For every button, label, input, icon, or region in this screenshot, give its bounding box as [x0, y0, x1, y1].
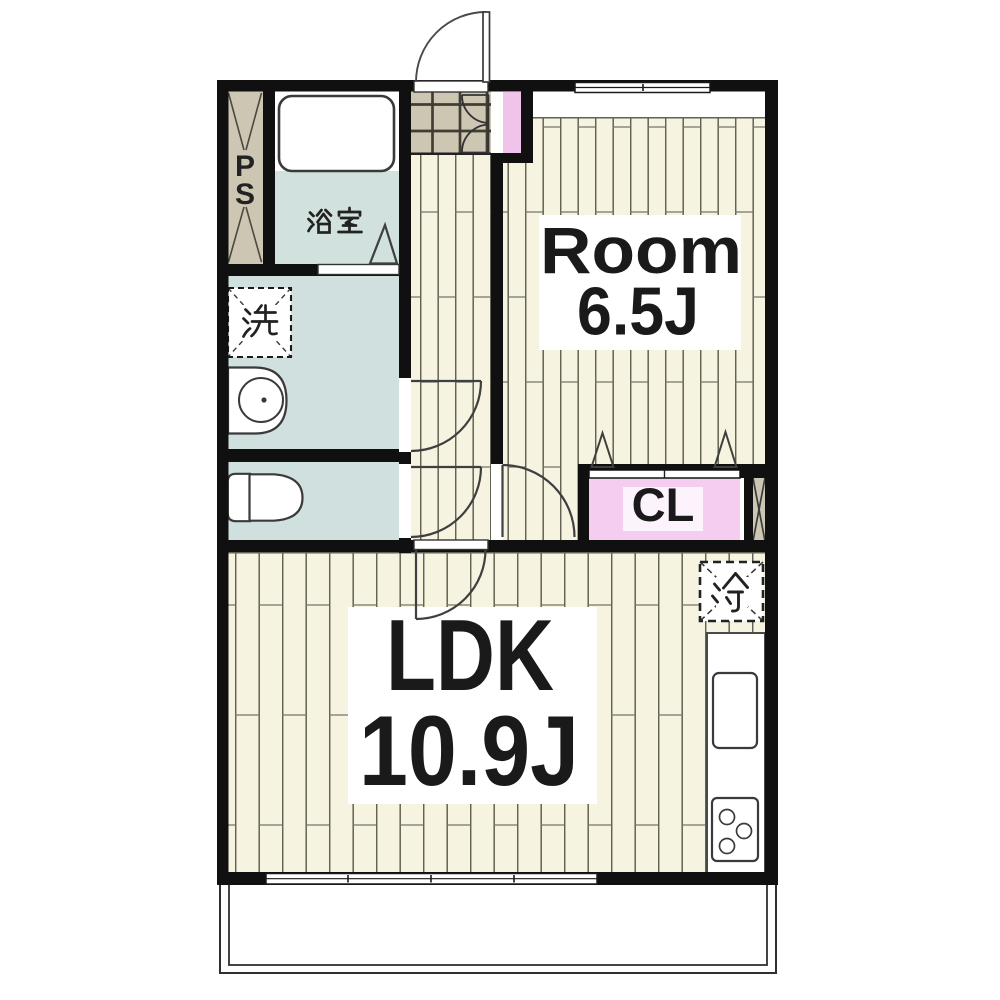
- svg-text:6.5J: 6.5J: [577, 274, 699, 350]
- svg-text:S: S: [235, 178, 255, 211]
- svg-text:CL: CL: [632, 478, 695, 531]
- svg-text:10.9J: 10.9J: [359, 695, 579, 806]
